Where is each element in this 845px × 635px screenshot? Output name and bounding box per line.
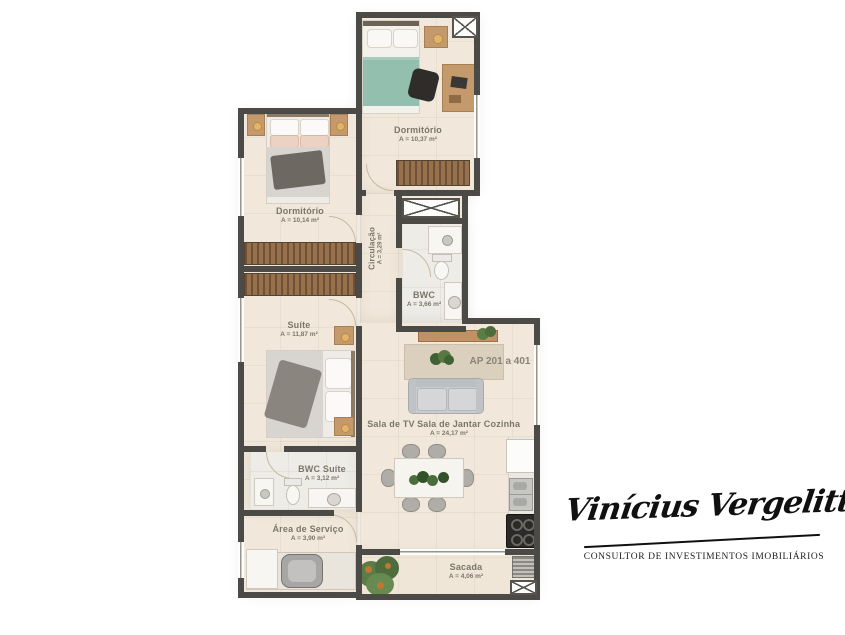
washing-machine-icon (281, 554, 323, 588)
label-dormitorio-left: Dormitório A = 10,14 m² (276, 206, 324, 225)
room-name: Dormitório (394, 125, 442, 136)
room-name: Cozinha (484, 419, 520, 430)
wardrobe-top-bedroom (396, 160, 470, 186)
wall-spine-a (356, 12, 362, 215)
room-name: BWC (407, 290, 441, 301)
lamp-icon (253, 122, 262, 131)
kitchen-sink-icon (508, 477, 534, 511)
room-area: A = 3,90 m² (272, 535, 343, 543)
room-area: A = 3,66 m² (407, 301, 441, 309)
wall-top-bedroom-right-b (474, 158, 480, 196)
window-area-servico (238, 542, 244, 578)
wall-left-b (238, 216, 244, 298)
room-area: A = 24,17 m² (417, 430, 481, 438)
wall-bwc-left-b (396, 278, 402, 332)
label-dormitorio-top: Dormitório A = 10,37 m² (394, 125, 442, 144)
sliding-door-sacada (400, 549, 505, 555)
lamp-icon (336, 122, 345, 131)
wall-living-top-right (462, 318, 540, 324)
wall-top-bedroom-bottom-a (362, 190, 366, 196)
wall-left-a (238, 108, 244, 158)
single-bed (362, 20, 420, 114)
sofa-armrest (476, 379, 483, 413)
pillow (270, 119, 299, 136)
label-cozinha: Cozinha (484, 419, 520, 430)
shower-head-icon (442, 235, 453, 246)
nightstand (247, 114, 265, 136)
shower-bwc-suite (254, 478, 274, 506)
wardrobe-suite (244, 273, 356, 296)
toilet-bowl (286, 485, 300, 505)
pillow (325, 358, 352, 389)
label-unit-number: AP 201 a 401 (470, 356, 531, 367)
room-name: Circulação (368, 216, 378, 280)
double-bed (266, 112, 330, 204)
lamp-icon (433, 34, 443, 44)
floorplan-page: { "plan": { "unit_label": "AP 201 a 401"… (0, 0, 845, 635)
room-name: Sala de Jantar (417, 419, 481, 430)
centerpiece-plant-icon (430, 350, 454, 366)
wall-left-block-top (238, 108, 362, 114)
desk (442, 64, 475, 112)
label-suite: Suíte A = 11,87 m² (280, 320, 318, 339)
room-area: A = 10,14 m² (276, 217, 324, 225)
stove-icon (506, 514, 536, 548)
sofa-back (409, 379, 483, 387)
dining-chair (428, 497, 446, 512)
plant-fruit (377, 582, 384, 589)
toilet-bowl (434, 261, 449, 280)
label-bwc: BWC A = 3,66 m² (407, 290, 441, 309)
vanity-bwc (444, 282, 462, 320)
lamp-icon (341, 424, 350, 433)
wardrobe-dorm-left (244, 242, 356, 265)
sink-icon (327, 493, 341, 506)
wall-left-block-bottom (238, 592, 362, 598)
room-area: A = 10,37 m² (394, 136, 442, 144)
bed-headboard (363, 21, 419, 26)
plant-leaf (438, 472, 449, 483)
wall-dorm-suite-divider (242, 266, 356, 272)
nightstand (330, 114, 348, 136)
desk-book (449, 95, 461, 103)
plant-fruit (385, 563, 391, 569)
fridge (506, 439, 535, 473)
ac-grill-icon (512, 556, 535, 578)
burner (511, 519, 523, 531)
window-top-bedroom (474, 95, 480, 158)
window-dorm-left (238, 158, 244, 216)
balcony-plant-icon (358, 555, 408, 597)
wall-spine-b (356, 243, 362, 298)
room-area: A = 3,12 m² (298, 475, 346, 483)
wall-shaft-bottom (396, 218, 466, 224)
shower-head-icon (260, 489, 270, 499)
label-bwc-suite: BWC Suíte A = 3,12 m² (298, 464, 346, 483)
wall-living-sacada-a (362, 549, 400, 555)
nightstand (334, 417, 354, 436)
plant-fruit (365, 566, 372, 573)
room-name: Área de Serviço (272, 524, 343, 535)
burner (511, 534, 523, 546)
room-area: A = 4,06 m² (449, 573, 483, 581)
room-name: Dormitório (276, 206, 324, 217)
dining-chair (428, 444, 446, 459)
plant-leaf (444, 355, 454, 365)
wall-left-c (238, 362, 244, 542)
table-plant-icon (409, 471, 451, 486)
sink-basin-inner (513, 498, 527, 506)
wall-bwc-right (462, 196, 468, 324)
pillow (300, 119, 329, 136)
washer-lid (288, 560, 316, 582)
shower-bwc (428, 226, 462, 254)
sink-basin (509, 494, 533, 511)
sink-basin (509, 478, 533, 495)
room-name: BWC Suíte (298, 464, 346, 475)
wall-spine-c (356, 326, 362, 512)
room-name: Sacada (449, 562, 483, 573)
room-area: A = 3,29 m² (377, 216, 384, 280)
room-area: A = 11,87 m² (280, 331, 318, 339)
sofa-armrest (409, 379, 416, 413)
wall-left-d (238, 578, 244, 598)
shaft-box-sacada (510, 580, 537, 595)
laptop-icon (450, 76, 467, 89)
vanity-bwc-suite (308, 488, 356, 508)
plant-leaf (427, 475, 438, 486)
plant-leaf (485, 326, 496, 337)
sofa-cushion (448, 388, 478, 411)
dining-chair (402, 497, 420, 512)
shaft-box-bwc (402, 198, 460, 218)
window-living (534, 345, 540, 425)
laundry-cabinet (246, 549, 278, 589)
wall-bwc-bottom (396, 326, 466, 332)
plant-icon (477, 326, 497, 341)
pillow (393, 29, 418, 48)
signature-flourish (584, 534, 820, 548)
wall-spine-d (356, 545, 362, 600)
room-name: Sala de TV (367, 419, 415, 430)
label-area-servico: Área de Serviço A = 3,90 m² (272, 524, 343, 543)
pillow (367, 29, 392, 48)
wall-suite-bwcsuite-a (242, 446, 266, 452)
sofa (408, 378, 484, 414)
brand-signature: Vinícius Vergelitti (563, 483, 845, 529)
sofa-cushion (417, 388, 447, 411)
sink-icon (448, 296, 461, 309)
wall-bwcsuite-servico (242, 510, 334, 516)
brand-tagline: CONSULTOR DE INVESTIMENTOS IMOBILIÁRIOS (566, 552, 842, 562)
label-sacada: Sacada A = 4,06 m² (449, 562, 483, 581)
dining-chair (402, 444, 420, 459)
toilet-bwc (432, 254, 452, 280)
window-suite (238, 298, 244, 362)
label-sala-tv: Sala de TV (367, 419, 415, 430)
sink-basin-inner (513, 482, 527, 490)
brand-block: Vinícius Vergelitti CONSULTOR DE INVESTI… (566, 488, 842, 578)
nightstand (334, 326, 354, 345)
label-circulacao: Circulação A = 3,29 m² (368, 216, 385, 280)
shaft-box-top-corner (452, 16, 478, 38)
label-sala-jantar: Sala de Jantar A = 24,17 m² (417, 419, 481, 438)
nightstand (424, 26, 448, 48)
lamp-icon (341, 333, 350, 342)
wall-suite-bwcsuite-b (284, 446, 362, 452)
room-name: Suíte (280, 320, 318, 331)
wall-living-right-a (534, 318, 540, 345)
dining-table (394, 458, 464, 498)
bed-throw (270, 150, 326, 190)
wall-living-right-b (534, 425, 540, 600)
